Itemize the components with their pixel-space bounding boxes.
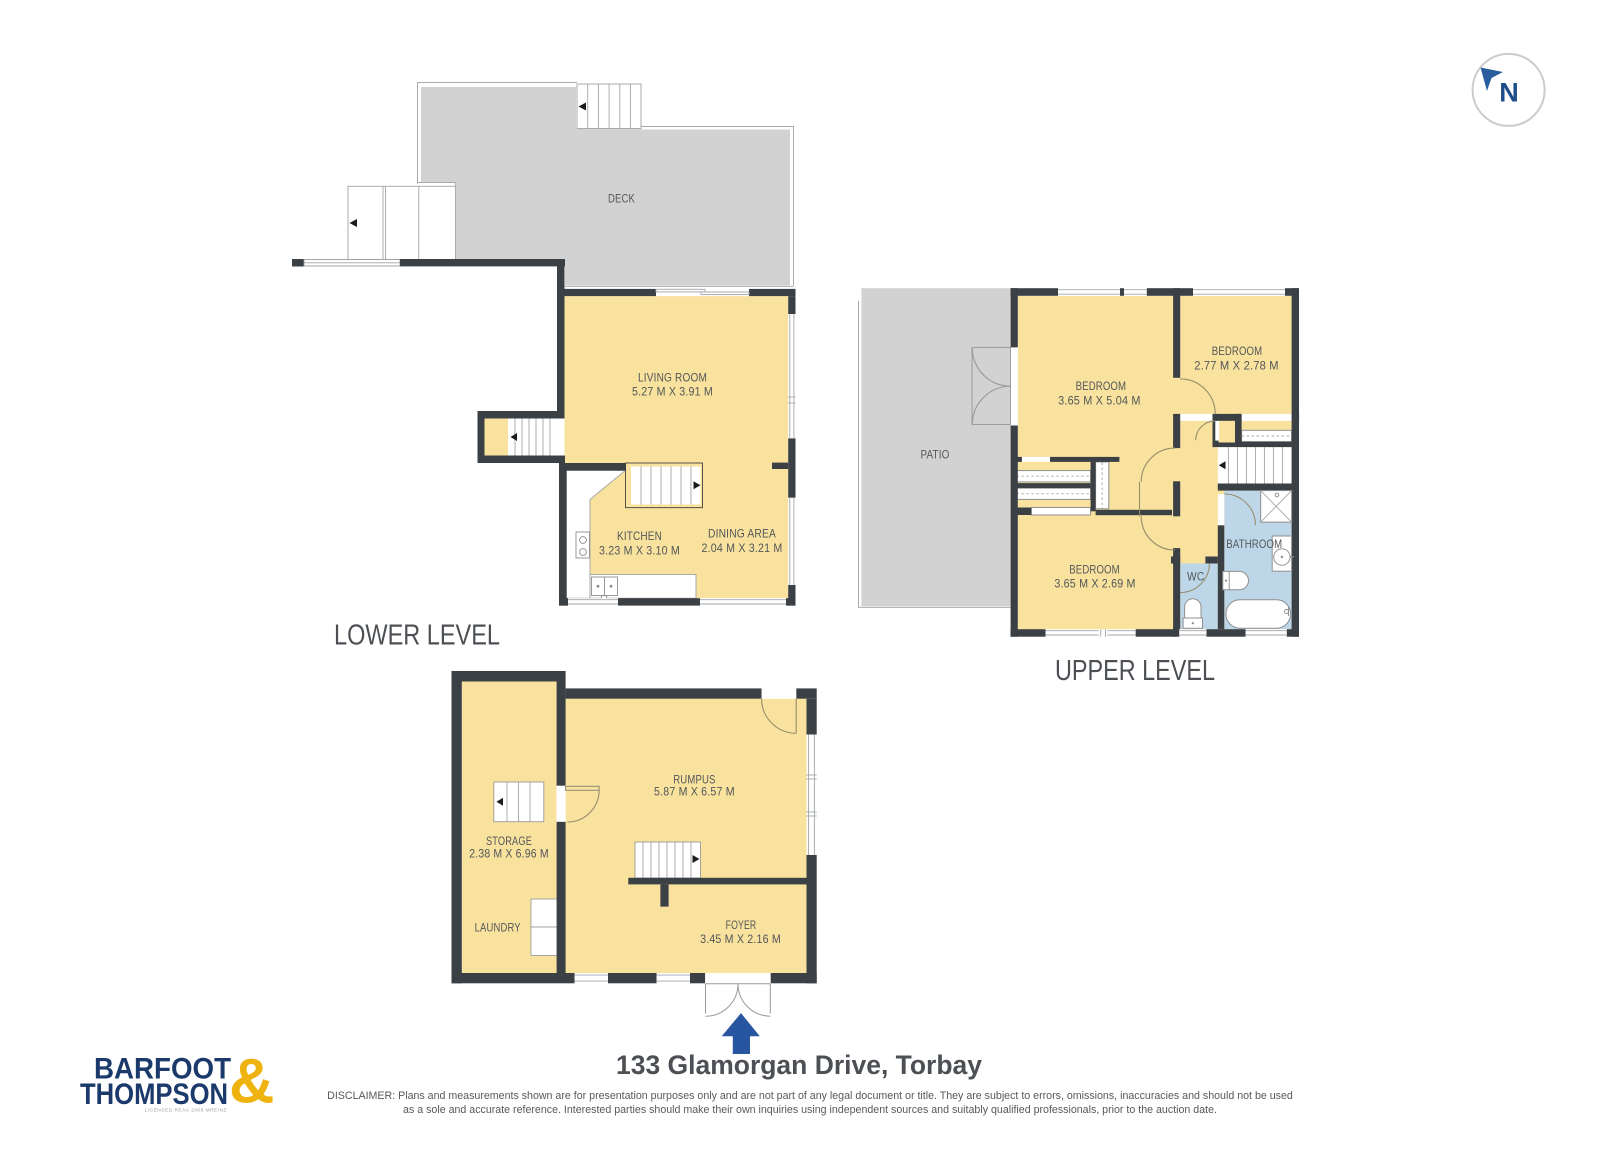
svg-text:LICENSED REAA 2008 MREINZ: LICENSED REAA 2008 MREINZ — [145, 1108, 227, 1114]
svg-text:LAUNDRY: LAUNDRY — [475, 921, 521, 935]
svg-text:2.77 M X 2.78 M: 2.77 M X 2.78 M — [1194, 358, 1279, 372]
svg-text:LOWER LEVEL: LOWER LEVEL — [334, 620, 500, 652]
svg-text:FOYER: FOYER — [726, 918, 757, 932]
svg-text:WC: WC — [1187, 570, 1205, 584]
svg-text:UPPER LEVEL: UPPER LEVEL — [1055, 655, 1215, 687]
svg-text:PATIO: PATIO — [921, 448, 950, 462]
svg-text:2.04 M X 3.21 M: 2.04 M X 3.21 M — [702, 541, 783, 555]
svg-text:BATHROOM: BATHROOM — [1226, 537, 1282, 551]
svg-text:2.38 M X 6.96 M: 2.38 M X 6.96 M — [469, 847, 549, 861]
svg-text:133 Glamorgan Drive, Torbay: 133 Glamorgan Drive, Torbay — [616, 1050, 982, 1080]
svg-text:3.45 M X 2.16 M: 3.45 M X 2.16 M — [700, 932, 781, 946]
svg-text:&: & — [229, 1047, 275, 1117]
svg-text:3.23 M X 3.10 M: 3.23 M X 3.10 M — [599, 544, 680, 558]
svg-text:5.87 M X 6.57 M: 5.87 M X 6.57 M — [654, 785, 735, 799]
svg-text:3.65 M X 2.69 M: 3.65 M X 2.69 M — [1054, 576, 1135, 590]
svg-text:LIVING ROOM: LIVING ROOM — [638, 370, 707, 384]
svg-text:KITCHEN: KITCHEN — [617, 529, 662, 543]
svg-text:BEDROOM: BEDROOM — [1069, 563, 1120, 577]
svg-text:DECK: DECK — [608, 192, 635, 206]
svg-text:BEDROOM: BEDROOM — [1076, 379, 1127, 393]
svg-text:5.27 M X 3.91 M: 5.27 M X 3.91 M — [632, 385, 713, 399]
svg-text:BEDROOM: BEDROOM — [1212, 344, 1263, 358]
svg-text:as a sole and accurate referen: as a sole and accurate reference. Intere… — [403, 1104, 1217, 1116]
svg-text:DISCLAIMER: Plans and measurem: DISCLAIMER: Plans and measurements shown… — [327, 1090, 1293, 1102]
svg-text:N: N — [1499, 78, 1519, 108]
svg-text:3.65 M X 5.04 M: 3.65 M X 5.04 M — [1058, 394, 1141, 408]
svg-text:DINING AREA: DINING AREA — [708, 527, 776, 541]
svg-text:THOMPSON: THOMPSON — [80, 1078, 228, 1111]
